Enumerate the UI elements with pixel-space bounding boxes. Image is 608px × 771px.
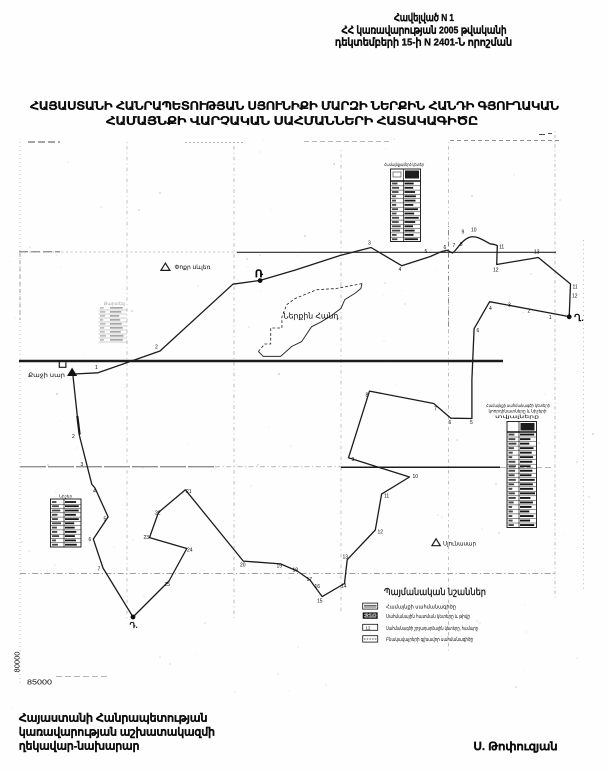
svg-text:Փոքր սևլեռ: Փոքր սևլեռ (175, 264, 211, 271)
svg-text:8: 8 (460, 242, 463, 248)
svg-text:2: 2 (528, 309, 531, 315)
svg-text:23: 23 (144, 535, 150, 541)
svg-text:7: 7 (453, 243, 456, 249)
svg-text:6: 6 (477, 328, 480, 334)
svg-text:11: 11 (573, 285, 578, 291)
svg-text:1: 1 (95, 365, 98, 371)
svg-text:4: 4 (489, 306, 492, 312)
svg-text:5: 5 (425, 249, 428, 255)
svg-text:4: 4 (399, 267, 402, 273)
svg-text:10: 10 (413, 474, 419, 480)
svg-text:12: 12 (366, 625, 372, 630)
svg-text:10: 10 (471, 228, 477, 234)
svg-text:կառավարության աշխատակազմի: կառավարության աշխատակազմի (19, 727, 215, 739)
svg-text:Սյունասար: Սյունասար (443, 541, 476, 548)
svg-text:11: 11 (384, 494, 389, 500)
svg-text:12: 12 (572, 294, 578, 300)
svg-text:ՀԱՅԱՍՏԱՆԻ ՀԱՆՐԱՊԵՏՈՒԹՅԱՆ ՍՅՈՒՆ: ՀԱՅԱՍՏԱՆԻ ՀԱՆՐԱՊԵՏՈՒԹՅԱՆ ՍՅՈՒՆԻՔԻ ՄԱՐԶԻ … (30, 101, 559, 113)
svg-text:7: 7 (434, 407, 437, 413)
svg-text:Հայաստանի Հանրապետության: Հայաստանի Հանրապետության (19, 713, 208, 725)
svg-text:Սահմանային հատման կետերը և թիվ: Սահմանային հատման կետերը և թիվը (386, 613, 470, 620)
svg-text:Պայմանական նշաններ: Պայմանական նշաններ (384, 587, 486, 598)
svg-text:13: 13 (343, 555, 349, 561)
svg-text:Դ.: Դ. (130, 621, 138, 630)
svg-text:4: 4 (93, 489, 96, 495)
svg-text:5: 5 (470, 420, 473, 426)
svg-text:Նիշեր: Նիշեր (59, 494, 72, 499)
svg-text:2: 2 (72, 434, 75, 440)
svg-text:25: 25 (165, 582, 171, 588)
svg-text:Ս. Թոփուզյան: Ս. Թոփուզյան (474, 741, 558, 753)
svg-text:Համայնքի սահմանագիծը: Համայնքի սահմանագիծը (386, 604, 456, 611)
svg-text:18: 18 (293, 568, 299, 574)
svg-text:6: 6 (444, 245, 447, 251)
svg-text:24: 24 (187, 548, 193, 554)
svg-text:Ներքին Հանդ: Ներքին Հանդ (283, 312, 339, 321)
svg-text:22: 22 (155, 511, 161, 517)
svg-text:ՀՀ կառավարության 2005 թվականի: ՀՀ կառավարության 2005 թվականի (342, 25, 507, 37)
svg-text:Ղ.: Ղ. (574, 313, 584, 324)
svg-text:ղեկավար-նախարար: ղեկավար-նախարար (19, 741, 140, 753)
svg-text:12: 12 (378, 530, 384, 536)
svg-text:Բնակավայրերի գլխավոր սահմանագի: Բնակավայրերի գլխավոր սահմանագիծը (386, 636, 473, 643)
svg-text:3: 3 (81, 462, 84, 468)
svg-text:21: 21 (186, 489, 192, 495)
svg-text:9: 9 (462, 230, 465, 236)
svg-text:20: 20 (240, 563, 246, 569)
svg-text:13: 13 (534, 250, 540, 256)
svg-text:2: 2 (155, 345, 158, 351)
svg-text:12: 12 (493, 268, 499, 274)
svg-text:Ռ: Ռ (255, 269, 263, 280)
svg-text:16: 16 (315, 584, 321, 590)
svg-text:Քաջի սար: Քաջի սար (28, 372, 65, 379)
svg-text:85000: 85000 (27, 680, 52, 687)
svg-text:5: 5 (104, 517, 107, 523)
svg-text:14: 14 (341, 584, 347, 590)
svg-text:19: 19 (277, 564, 283, 570)
svg-text:310: 310 (364, 614, 376, 620)
svg-text:Հավելված N 1: Հավելված N 1 (394, 12, 454, 24)
svg-text:ՀԱՄԱՅՆՔԻ ՎԱՐՉԱԿԱՆ ՍԱՀՄԱՆՆԵՐԻ: ՀԱՄԱՅՆՔԻ ՎԱՐՉԱԿԱՆ ՍԱՀՄԱՆՆԵՐԻ ՀԱՏԱԿԱԳԻԾԸ (106, 116, 478, 128)
svg-text:9: 9 (352, 457, 355, 463)
svg-text:8: 8 (366, 393, 369, 399)
svg-text:6: 6 (449, 420, 452, 426)
svg-text:6: 6 (89, 537, 92, 543)
svg-text:դեկտեմբերի 15-ի N 2401-Ն որոշմ: դեկտեմբերի 15-ի N 2401-Ն որոշման (335, 37, 512, 49)
svg-text:15: 15 (317, 599, 323, 605)
svg-text:11: 11 (499, 245, 504, 251)
svg-text:3: 3 (508, 303, 511, 309)
svg-text:7: 7 (98, 567, 101, 573)
svg-text:3: 3 (368, 241, 371, 247)
svg-text:Սահմանագծի շրջադարձային կետերը: Սահմանագծի շրջադարձային կետերը, համարը (386, 625, 478, 632)
svg-text:17: 17 (307, 577, 313, 583)
svg-text:80000: 80000 (15, 651, 22, 672)
svg-text:1: 1 (549, 315, 552, 321)
